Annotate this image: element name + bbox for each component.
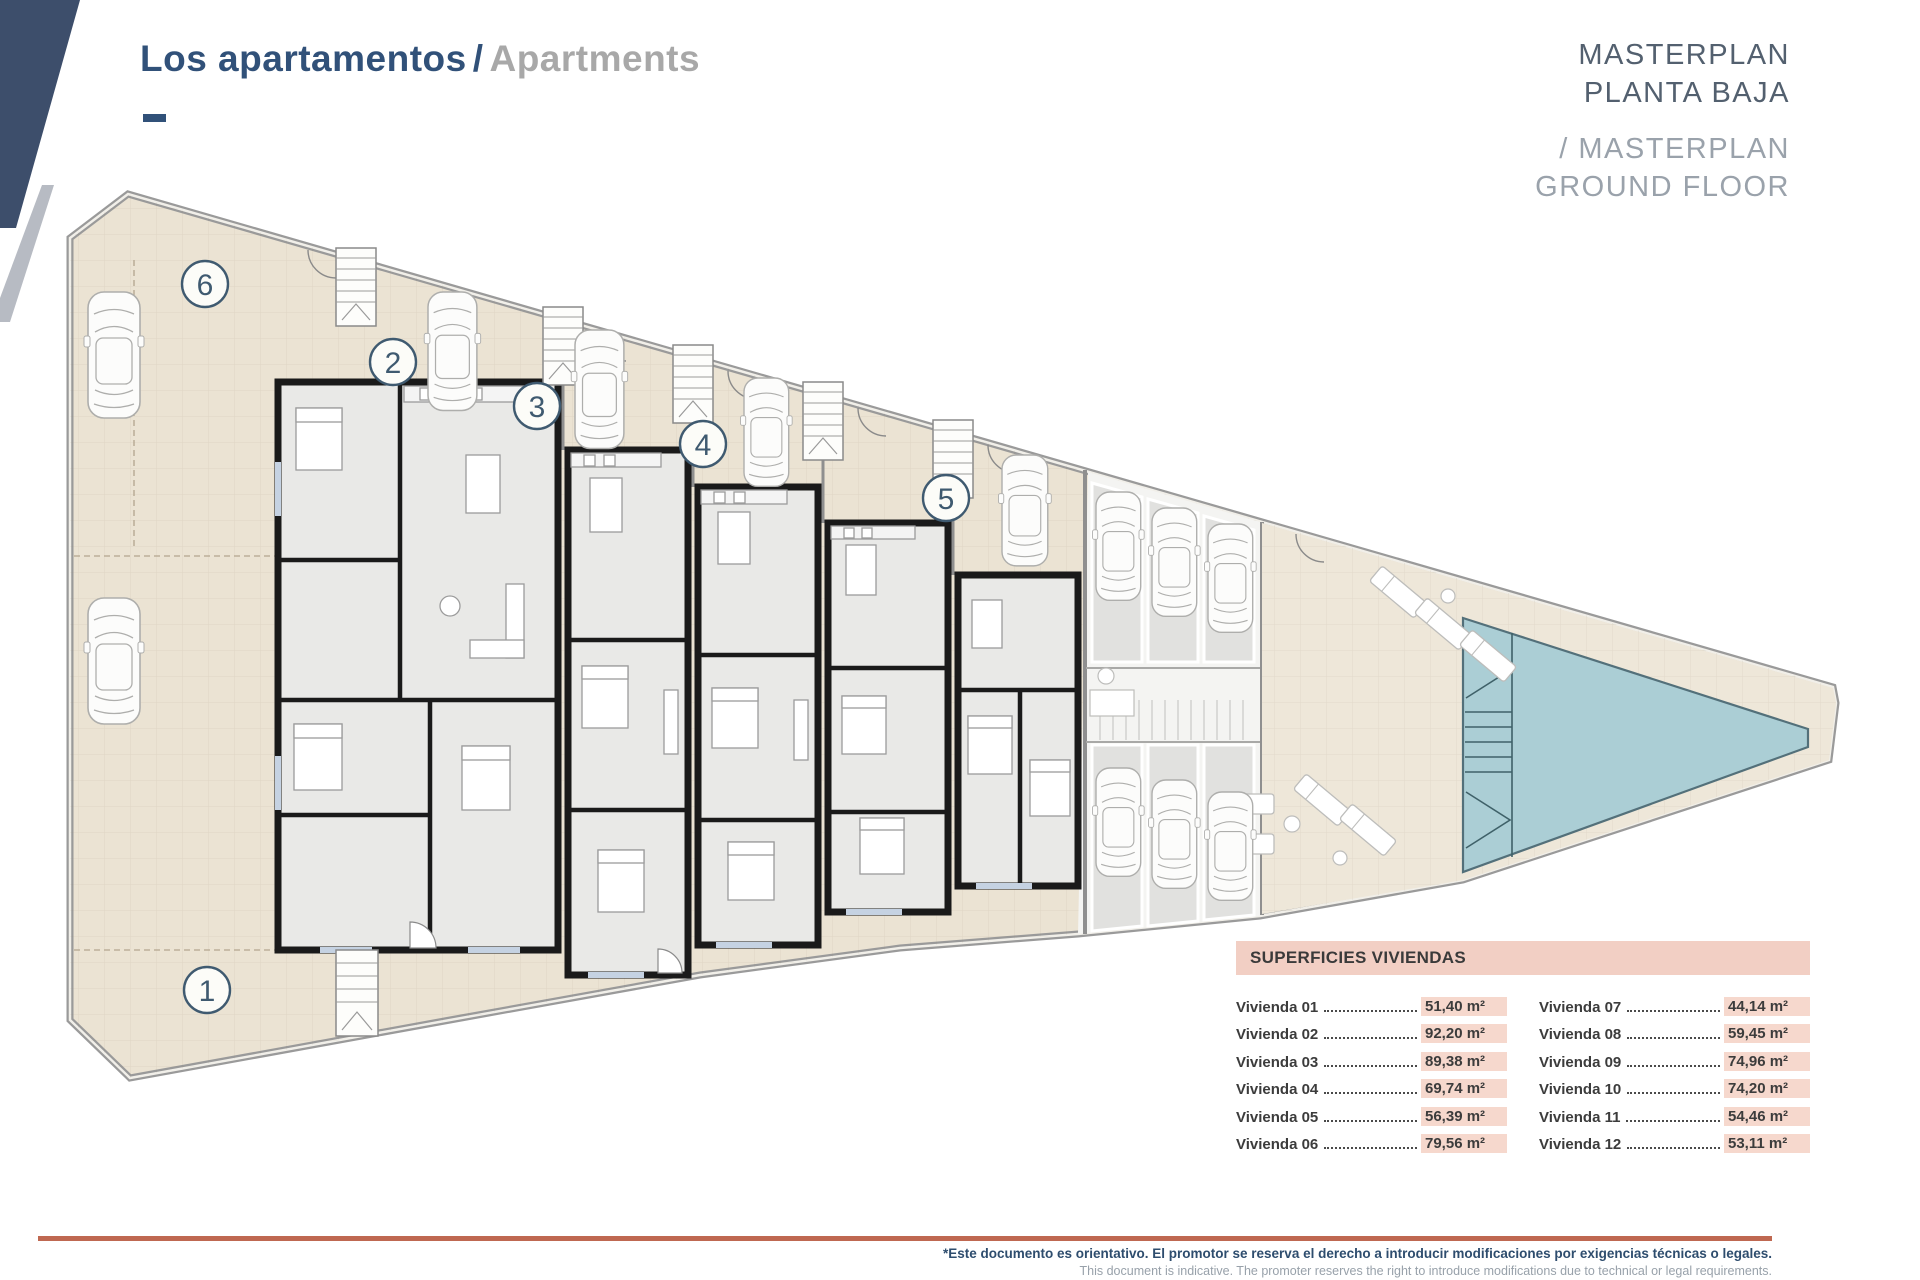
table-row: Vivienda 1253,11 m² <box>1539 1126 1810 1154</box>
table-row: Vivienda 0556,39 m² <box>1236 1098 1507 1126</box>
table-row: Vivienda 0859,45 m² <box>1539 1016 1810 1044</box>
unit-badge-3: 3 <box>514 383 560 429</box>
table-row: Vivienda 0389,38 m² <box>1236 1043 1507 1071</box>
car-icon <box>571 330 627 448</box>
car-icon <box>1205 524 1257 632</box>
table-row: Vivienda 1154,46 m² <box>1539 1098 1810 1126</box>
staircase-bottom <box>336 950 378 1036</box>
car-icon <box>1149 780 1201 888</box>
table-row: Vivienda 0151,40 m² <box>1236 988 1507 1016</box>
window-sill <box>846 909 902 915</box>
table-row: Vivienda 0469,74 m² <box>1236 1071 1507 1099</box>
window-sill <box>716 942 772 948</box>
car-icon <box>424 292 480 410</box>
table-row: Vivienda 1074,20 m² <box>1539 1071 1810 1099</box>
window-sill <box>588 972 644 978</box>
unit-badge-5: 5 <box>923 475 969 521</box>
car-icon <box>84 292 144 418</box>
car-icon <box>1093 492 1145 600</box>
svg-text:6: 6 <box>197 269 214 302</box>
car-icon <box>1205 792 1257 900</box>
svg-text:2: 2 <box>385 347 402 380</box>
apartment-block-2 <box>568 450 688 978</box>
car-icon <box>741 378 793 486</box>
svg-text:4: 4 <box>695 429 712 462</box>
car-icon <box>998 455 1051 566</box>
areas-table-left-column: Vivienda 0151,40 m² Vivienda 0292,20 m² … <box>1236 988 1507 1153</box>
table-row: Vivienda 0974,96 m² <box>1539 1043 1810 1071</box>
svg-text:3: 3 <box>529 391 546 424</box>
car-icon <box>1149 508 1201 616</box>
footer-disclaimer: *Este documento es orientativo. El promo… <box>943 1246 1772 1278</box>
unit-badge-6: 6 <box>182 261 228 307</box>
car-icon <box>84 598 144 724</box>
svg-text:5: 5 <box>938 483 955 516</box>
table-row: Vivienda 0292,20 m² <box>1236 1016 1507 1044</box>
apartment-block-1 <box>275 382 558 953</box>
apartment-block-4 <box>828 523 948 915</box>
table-row: Vivienda 0744,14 m² <box>1539 988 1810 1016</box>
unit-badge-4: 4 <box>680 421 726 467</box>
brochure-page: Los apartamentos/Apartments MASTERPLAN P… <box>0 0 1920 1280</box>
car-icon <box>1093 768 1145 876</box>
disclaimer-spanish: *Este documento es orientativo. El promo… <box>943 1246 1772 1261</box>
svg-text:1: 1 <box>199 975 216 1008</box>
unit-badge-1: 1 <box>184 967 230 1013</box>
unit-badge-2: 2 <box>370 339 416 385</box>
table-row: Vivienda 0679,56 m² <box>1236 1126 1507 1154</box>
apartment-block-3 <box>698 487 818 948</box>
areas-table-title: SUPERFICIES VIVIENDAS <box>1236 941 1810 975</box>
areas-table: SUPERFICIES VIVIENDAS Vivienda 0151,40 m… <box>1236 941 1810 1153</box>
apartment-block-5 <box>958 575 1078 889</box>
disclaimer-english: This document is indicative. The promote… <box>943 1264 1772 1278</box>
window-sill <box>976 883 1032 889</box>
areas-table-right-column: Vivienda 0744,14 m² Vivienda 0859,45 m² … <box>1539 988 1810 1153</box>
footer-divider-line <box>38 1236 1772 1241</box>
